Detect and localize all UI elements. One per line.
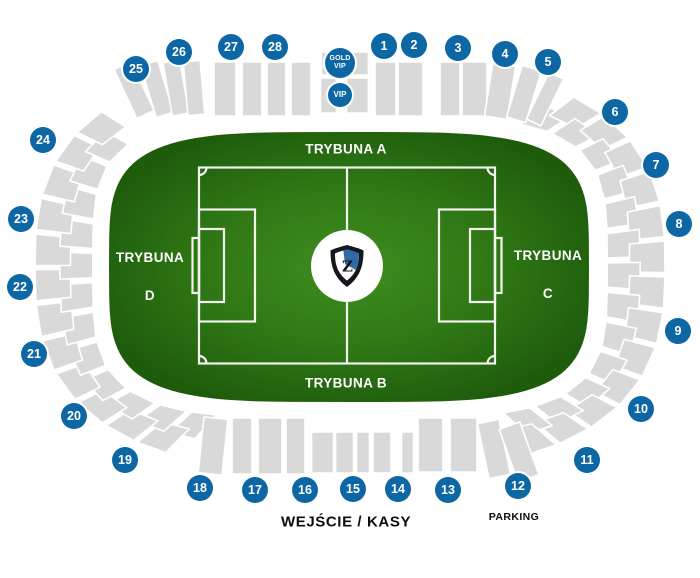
- section-badge[interactable]: 19: [112, 447, 138, 473]
- stand-block: [440, 62, 460, 116]
- section-badge[interactable]: 21: [21, 341, 47, 367]
- vip-badge[interactable]: VIP: [328, 83, 352, 107]
- section-badge[interactable]: 24: [30, 127, 56, 153]
- stand-block: [462, 62, 487, 116]
- stand-block: [183, 60, 205, 115]
- section-badge[interactable]: 17: [242, 477, 268, 503]
- section-badge[interactable]: 9: [665, 318, 691, 344]
- stand-block: [450, 418, 477, 472]
- section-badge[interactable]: 4: [492, 41, 518, 67]
- stand-block: [198, 417, 228, 475]
- stand-label-trybuna-a: TRYBUNA A: [305, 141, 387, 160]
- section-badge[interactable]: 22: [7, 274, 33, 300]
- stand-block: [402, 432, 414, 473]
- parking-label: PARKING: [489, 511, 539, 523]
- stand-block: [398, 62, 423, 116]
- section-badge[interactable]: 2: [401, 32, 427, 58]
- club-crest: Z: [311, 230, 383, 302]
- gold-vip-label-line1: GOLD: [329, 55, 350, 63]
- gold-vip-label-line2: VIP: [334, 63, 346, 71]
- stand-block: [291, 62, 311, 116]
- entrance-label: WEJŚCIE / KASY: [281, 514, 411, 531]
- stand-label-trybuna-d: TRYBUNA D: [116, 230, 184, 306]
- section-badge[interactable]: 25: [123, 56, 149, 82]
- section-badge[interactable]: 15: [340, 476, 366, 502]
- section-badge[interactable]: 12: [505, 473, 531, 499]
- stand-block: [418, 418, 443, 472]
- stand-label-trybuna-d-word: TRYBUNA: [116, 250, 184, 265]
- section-badge[interactable]: 26: [166, 39, 192, 65]
- stand-block: [258, 418, 282, 474]
- section-badge[interactable]: 23: [8, 206, 34, 232]
- stand-block: [242, 62, 262, 116]
- stand-label-trybuna-c: TRYBUNA C: [514, 228, 582, 304]
- section-badge[interactable]: 27: [218, 34, 244, 60]
- section-badge[interactable]: 13: [435, 477, 461, 503]
- section-badge[interactable]: 6: [602, 99, 628, 125]
- section-badge[interactable]: 5: [535, 49, 561, 75]
- stand-label-trybuna-d-letter: D: [145, 288, 155, 303]
- stand-block: [357, 432, 370, 473]
- section-badge[interactable]: 16: [292, 477, 318, 503]
- section-badge[interactable]: 11: [574, 447, 600, 473]
- stand-label-trybuna-c-letter: C: [543, 286, 553, 301]
- section-badge[interactable]: 3: [445, 35, 471, 61]
- stand-block: [286, 418, 305, 474]
- stand-block: [312, 432, 334, 473]
- section-badge[interactable]: 14: [385, 476, 411, 502]
- section-badge[interactable]: 18: [187, 475, 213, 501]
- stand-block: [373, 432, 391, 473]
- stand-label-trybuna-b: TRYBUNA B: [305, 375, 387, 394]
- stand-block: [267, 62, 286, 116]
- section-badge[interactable]: 28: [262, 34, 288, 60]
- stand-block: [375, 62, 396, 116]
- section-badge[interactable]: 20: [61, 403, 87, 429]
- section-badge[interactable]: 10: [628, 396, 654, 422]
- stand-block: [336, 432, 354, 473]
- section-badge[interactable]: 8: [666, 211, 692, 237]
- stadium-map: Z TRYBUNA A TRYBUNA B TRYBUNA D TRYBUNA …: [0, 0, 700, 578]
- section-badge[interactable]: 1: [371, 33, 397, 59]
- vip-label: VIP: [334, 91, 347, 99]
- stand-block: [214, 62, 236, 116]
- section-badge[interactable]: 7: [643, 152, 669, 178]
- crest-letter: Z: [342, 258, 353, 276]
- gold-vip-badge[interactable]: GOLD VIP: [325, 48, 355, 78]
- stand-label-trybuna-c-word: TRYBUNA: [514, 248, 582, 263]
- stand-block: [232, 418, 252, 474]
